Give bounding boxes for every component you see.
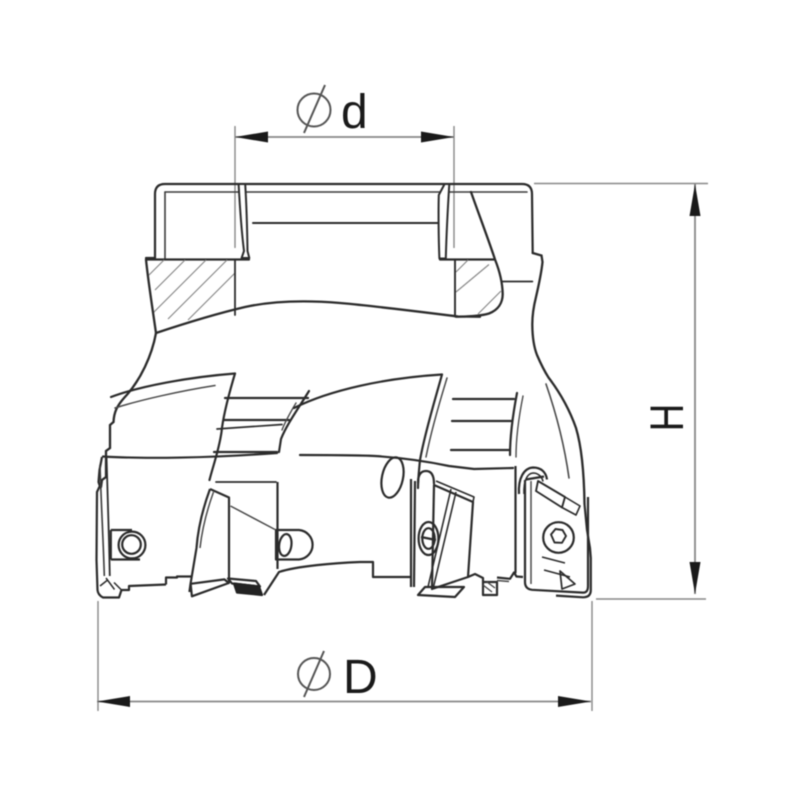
svg-text:d: d — [341, 86, 368, 139]
svg-text:D: D — [343, 651, 378, 704]
svg-text:H: H — [641, 404, 693, 432]
